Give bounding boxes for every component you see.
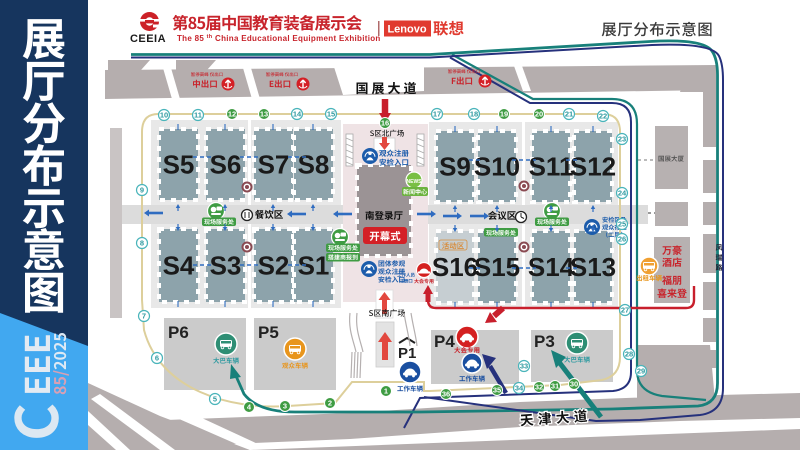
svg-text:P5: P5: [258, 323, 279, 342]
svg-text:34: 34: [515, 384, 524, 393]
svg-text:35: 35: [493, 386, 501, 395]
svg-text:13: 13: [260, 110, 268, 119]
svg-text:5: 5: [213, 395, 217, 404]
svg-text:S7: S7: [258, 150, 290, 180]
svg-text:21: 21: [565, 110, 573, 119]
svg-text:S5: S5: [163, 150, 195, 180]
svg-text:6: 6: [155, 354, 159, 363]
svg-text:29: 29: [637, 367, 645, 376]
svg-text:Lenovo: Lenovo: [387, 24, 426, 36]
svg-text:36: 36: [442, 390, 450, 399]
svg-text:25: 25: [618, 220, 626, 229]
svg-text:32: 32: [535, 383, 543, 392]
svg-text:S12: S12: [570, 152, 616, 182]
svg-text:S4: S4: [163, 251, 195, 281]
svg-text:P1: P1: [398, 345, 416, 362]
svg-text:3: 3: [283, 402, 287, 411]
svg-text:30: 30: [570, 380, 578, 389]
svg-text:27: 27: [621, 306, 629, 315]
svg-text:S11: S11: [529, 152, 574, 182]
svg-text:10: 10: [160, 111, 168, 120]
svg-text:24: 24: [618, 189, 627, 198]
svg-text:S16: S16: [432, 252, 478, 282]
svg-text:33: 33: [520, 362, 528, 371]
svg-text:1: 1: [384, 387, 388, 396]
svg-text:31: 31: [551, 382, 559, 391]
svg-text:18: 18: [470, 110, 478, 119]
svg-text:15: 15: [327, 110, 335, 119]
svg-text:26: 26: [618, 235, 626, 244]
svg-text:9: 9: [140, 186, 144, 195]
svg-text:22: 22: [599, 112, 607, 121]
svg-text:P4: P4: [434, 332, 455, 351]
svg-text:16: 16: [381, 119, 389, 128]
svg-text:S3: S3: [210, 251, 242, 281]
svg-text:14: 14: [293, 110, 302, 119]
svg-text:S8: S8: [298, 150, 330, 180]
svg-text:17: 17: [433, 110, 441, 119]
svg-text:S15: S15: [474, 252, 520, 282]
svg-text:23: 23: [618, 135, 626, 144]
svg-text:S10: S10: [474, 152, 520, 182]
svg-text:2: 2: [328, 399, 332, 408]
svg-text:S2: S2: [258, 251, 290, 281]
svg-text:P6: P6: [168, 323, 189, 342]
svg-text:P3: P3: [534, 332, 555, 351]
svg-text:12: 12: [228, 110, 236, 119]
svg-text:NEWS: NEWS: [407, 179, 423, 185]
svg-text:28: 28: [625, 350, 633, 359]
svg-text:7: 7: [142, 312, 146, 321]
svg-text:S13: S13: [570, 252, 616, 282]
svg-text:S6: S6: [210, 150, 242, 180]
svg-text:S14: S14: [528, 252, 575, 282]
svg-text:20: 20: [535, 110, 543, 119]
svg-text:11: 11: [194, 111, 202, 120]
svg-text:S9: S9: [439, 152, 471, 182]
svg-text:8: 8: [140, 239, 144, 248]
svg-text:The 85 th China Educational: The 85 th China Educational Equipment Ex…: [177, 34, 381, 43]
svg-text:CEEIA: CEEIA: [130, 33, 166, 45]
svg-text:19: 19: [500, 110, 508, 119]
